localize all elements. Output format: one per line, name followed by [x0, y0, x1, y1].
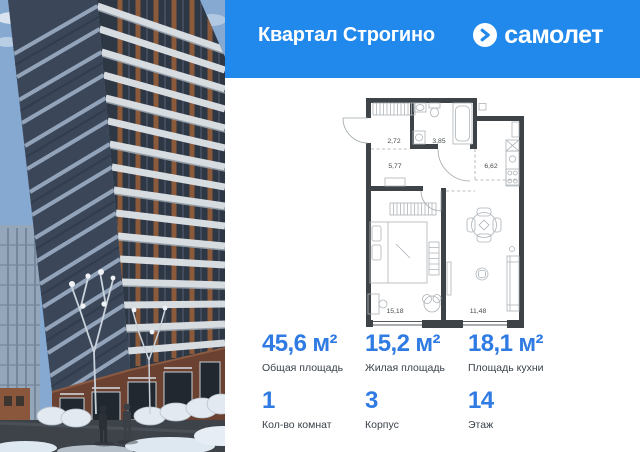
building-photo-illustration [0, 0, 225, 452]
stat-living-area: 15,2 м² Жилая площадь [365, 330, 468, 374]
zone-dashes [371, 149, 519, 191]
stat-value: 18,1 м² [468, 330, 571, 359]
room-area-living-room: 11,48 [470, 308, 487, 315]
stat-label: Кол-во комнат [262, 419, 365, 431]
stat-label: Площадь кухни [468, 362, 571, 374]
floor-plan: 2,72 3,85 5,77 6,62 15,18 11,48 [341, 92, 529, 332]
listing-card: Квартал Строгино самолет [0, 0, 640, 452]
header-banner: Квартал Строгино самолет [225, 0, 640, 78]
street [0, 420, 225, 452]
room-area-hallway: 5,77 [388, 163, 401, 170]
stat-value: 45,6 м² [262, 330, 365, 359]
background-buildings [0, 225, 40, 452]
stat-value: 15,2 м² [365, 330, 468, 359]
stat-label: Общая площадь [262, 362, 365, 374]
info-panel: Квартал Строгино самолет [225, 0, 640, 452]
stat-building: 3 Корпус [365, 387, 468, 431]
stat-kitchen-area: 18,1 м² Площадь кухни [468, 330, 571, 374]
stat-label: Жилая площадь [365, 362, 468, 374]
room-area-bedroom: 15,18 [386, 308, 403, 315]
stat-value: 3 [365, 387, 468, 416]
apartment-details: 2,72 3,85 5,77 6,62 15,18 11,48 45,6 м² … [225, 78, 640, 452]
stats-grid: 45,6 м² Общая площадь 15,2 м² Жилая площ… [262, 330, 571, 431]
stat-rooms-count: 1 Кол-во комнат [262, 387, 365, 431]
room-area-entry-hall: 2,72 [387, 138, 400, 145]
room-area-kitchen: 6,62 [484, 163, 497, 170]
brand-logo-icon [473, 23, 497, 47]
building-photo [0, 0, 225, 452]
stat-floor: 14 Этаж [468, 387, 571, 431]
brand-logo: самолет [473, 23, 603, 48]
project-title: Квартал Строгино [258, 24, 435, 47]
stat-value: 14 [468, 387, 571, 416]
stat-total-area: 45,6 м² Общая площадь [262, 330, 365, 374]
stat-value: 1 [262, 387, 365, 416]
stat-label: Корпус [365, 419, 468, 431]
room-area-bathroom: 3,85 [432, 138, 445, 145]
brand-name: самолет [504, 23, 603, 48]
stat-label: Этаж [468, 419, 571, 431]
doors [343, 118, 470, 211]
